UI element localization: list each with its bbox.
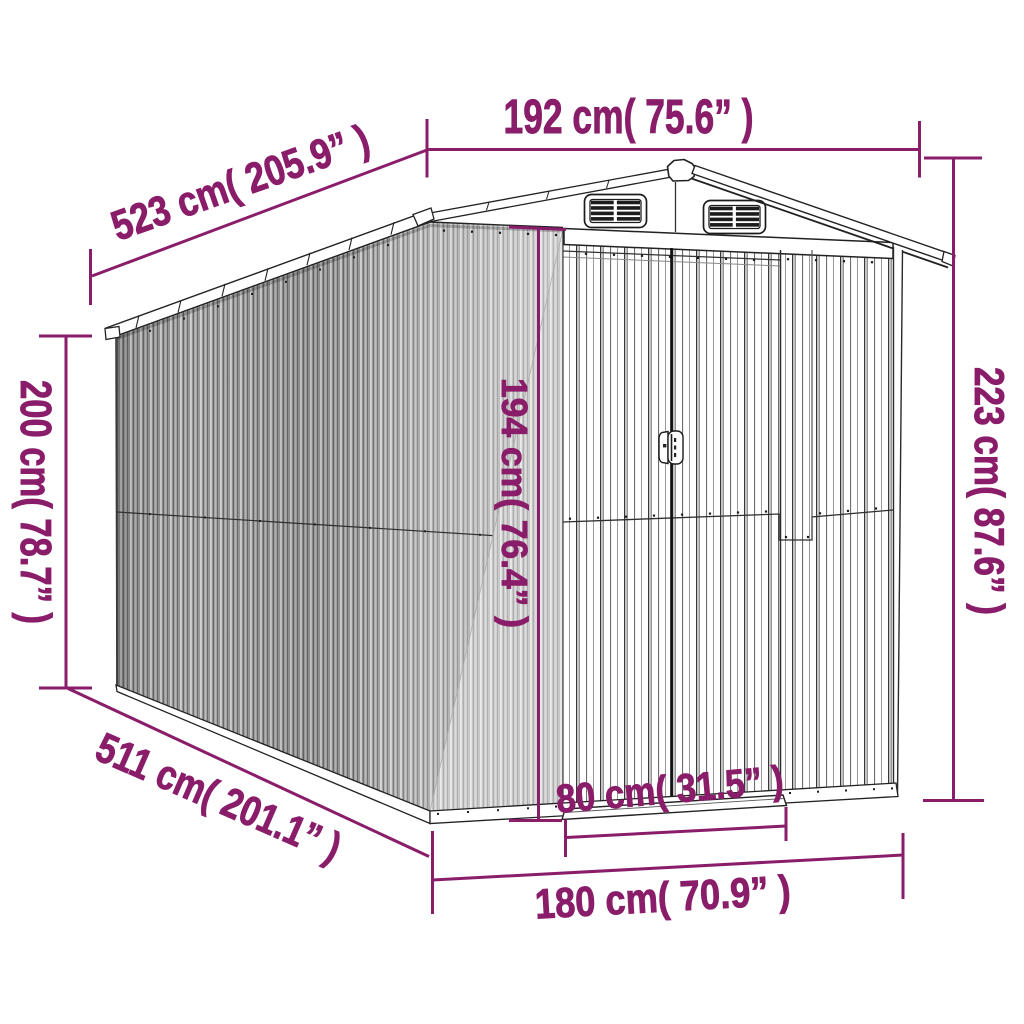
- svg-text:194 cm( 76.4” ): 194 cm( 76.4” ): [494, 378, 535, 628]
- svg-text:180 cm( 70.9” ): 180 cm( 70.9” ): [534, 866, 792, 927]
- svg-text:223 cm( 87.6” ): 223 cm( 87.6” ): [966, 367, 1013, 615]
- svg-text:200 cm( 78.7” ): 200 cm( 78.7” ): [11, 380, 60, 624]
- svg-text:192 cm( 75.6” ): 192 cm( 75.6” ): [504, 91, 754, 144]
- svg-text:523 cm( 205.9” ): 523 cm( 205.9” ): [105, 115, 375, 249]
